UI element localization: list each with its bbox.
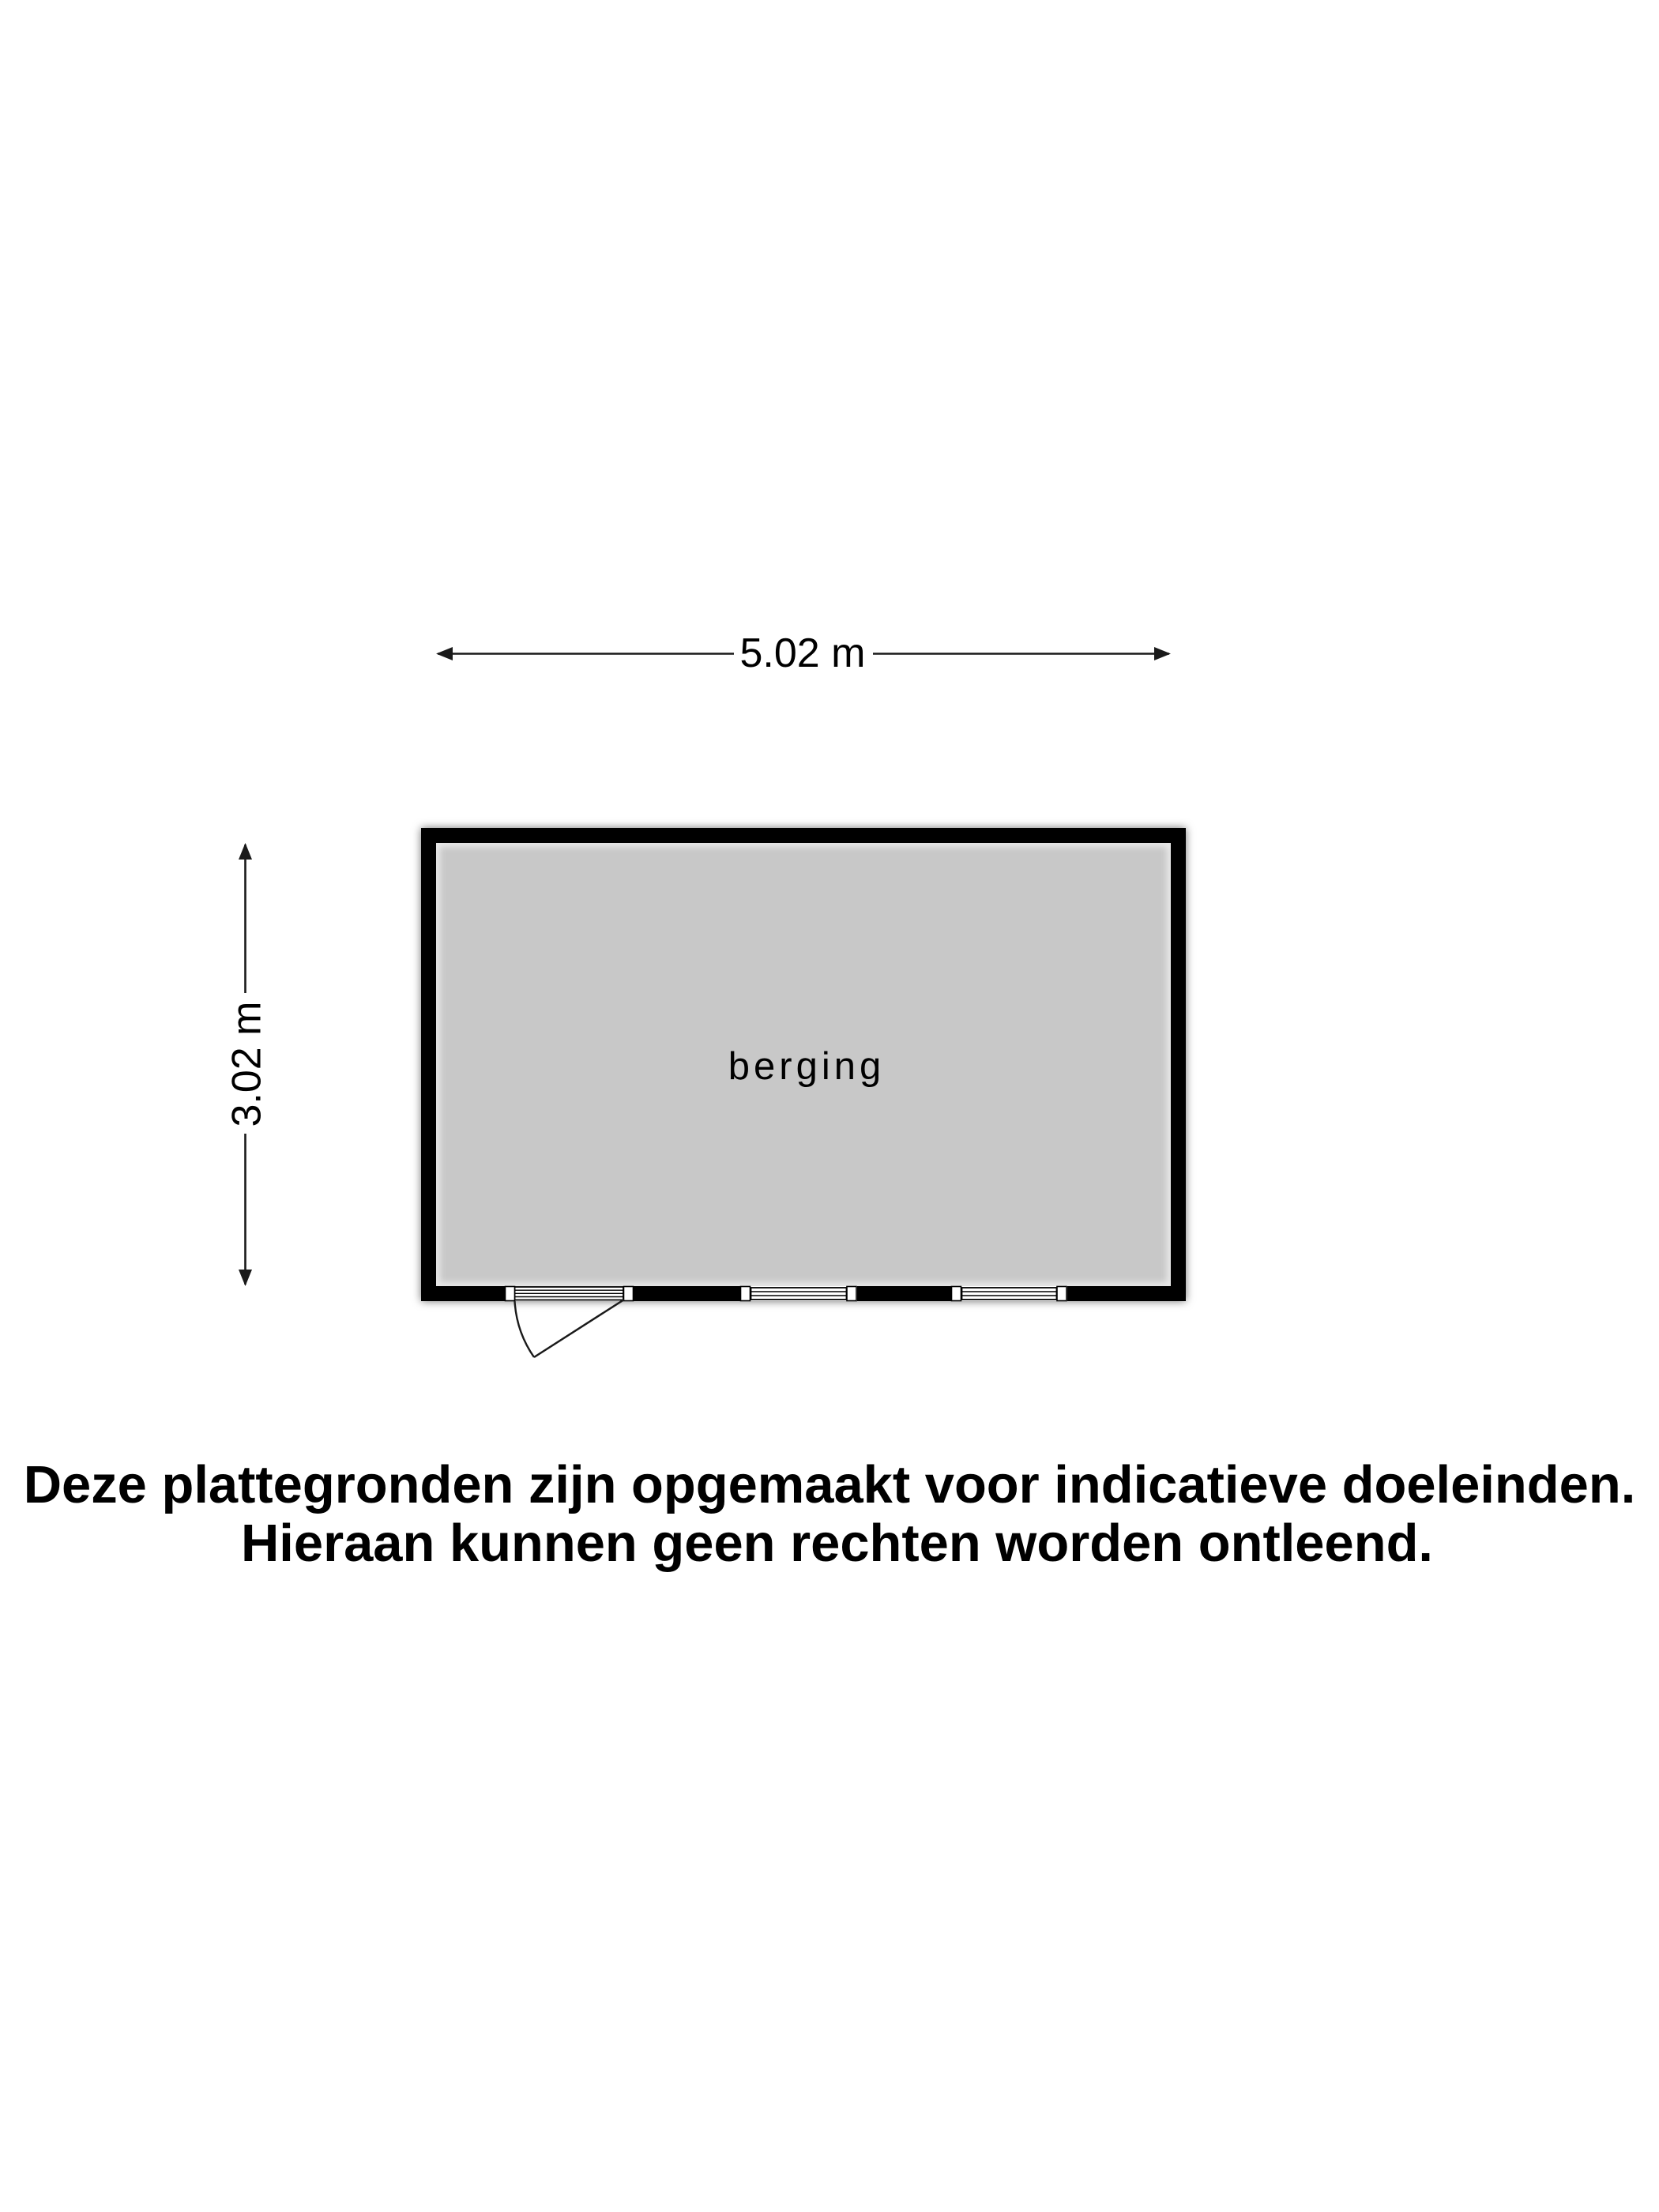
svg-text:3.02 m: 3.02 m xyxy=(224,1002,270,1127)
svg-text:5.02 m: 5.02 m xyxy=(740,630,866,676)
svg-text:berging: berging xyxy=(728,1045,885,1088)
